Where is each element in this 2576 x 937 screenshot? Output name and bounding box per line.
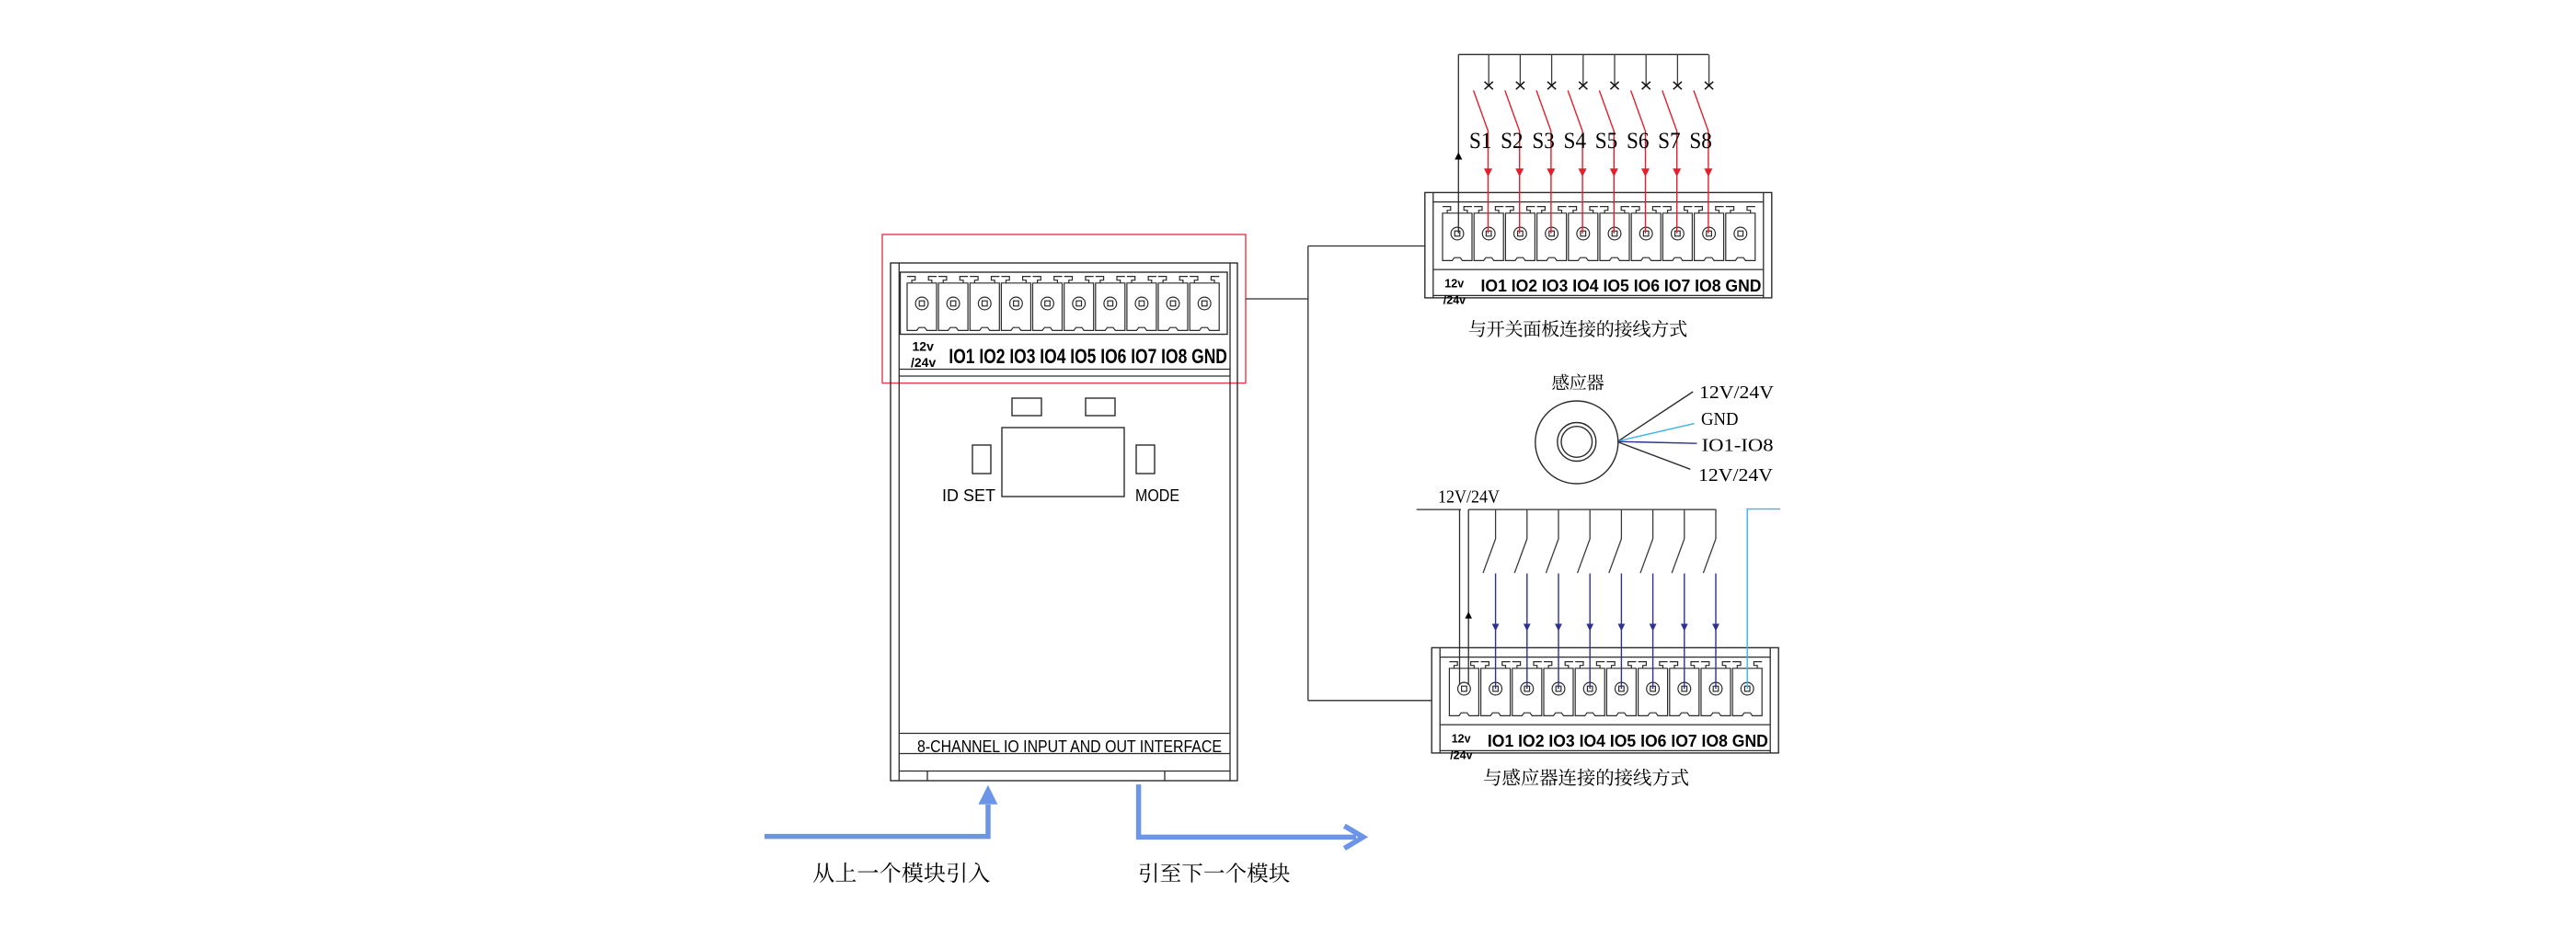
svg-text:GND: GND xyxy=(1701,409,1739,429)
svg-text:S4: S4 xyxy=(1564,129,1587,154)
svg-text:S1: S1 xyxy=(1469,129,1492,154)
svg-text:/24v: /24v xyxy=(1450,748,1472,761)
svg-text:12V/24V: 12V/24V xyxy=(1698,465,1774,486)
svg-text:ID SET: ID SET xyxy=(942,486,995,505)
svg-text:12v: 12v xyxy=(1452,732,1471,745)
svg-text:IO1 IO2 IO3 IO4 IO5 IO6 IO7 IO: IO1 IO2 IO3 IO4 IO5 IO6 IO7 IO8 GND xyxy=(1488,731,1768,750)
svg-text:S2: S2 xyxy=(1501,129,1524,154)
svg-text:IO1 IO2 IO3 IO4 IO5 IO6 IO7 IO: IO1 IO2 IO3 IO4 IO5 IO6 IO7 IO8 GND xyxy=(949,345,1227,368)
svg-text:IO1-IO8: IO1-IO8 xyxy=(1702,436,1774,456)
svg-text:12V/24V: 12V/24V xyxy=(1699,383,1775,403)
svg-text:12V/24V: 12V/24V xyxy=(1438,487,1500,508)
svg-text:12v: 12v xyxy=(1444,277,1464,290)
svg-text:S6: S6 xyxy=(1627,129,1650,154)
svg-text:/24v: /24v xyxy=(1443,293,1466,306)
svg-text:S3: S3 xyxy=(1532,129,1555,154)
svg-text:IO1 IO2 IO3 IO4 IO5 IO6 IO7 IO: IO1 IO2 IO3 IO4 IO5 IO6 IO7 IO8 GND xyxy=(1481,276,1762,295)
svg-text:S7: S7 xyxy=(1658,129,1681,154)
svg-text:S5: S5 xyxy=(1595,129,1618,154)
svg-text:MODE: MODE xyxy=(1135,486,1179,505)
svg-text:/24v: /24v xyxy=(911,355,936,370)
svg-text:S8: S8 xyxy=(1689,129,1712,154)
svg-text:12v: 12v xyxy=(913,339,935,354)
